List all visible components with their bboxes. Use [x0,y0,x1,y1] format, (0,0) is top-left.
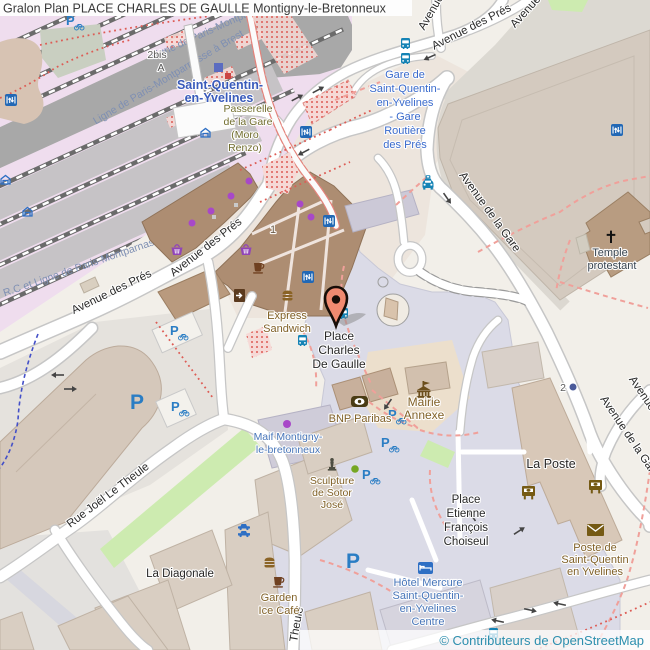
svg-text:P: P [130,391,144,414]
svg-text:en Yvelines: en Yvelines [567,566,624,578]
svg-text:De Gaulle: De Gaulle [312,357,366,371]
svg-text:François: François [444,522,488,534]
svg-text:Routière: Routière [384,125,426,137]
svg-text:P: P [346,550,360,573]
svg-text:Poste de: Poste de [573,542,616,554]
svg-text:Express: Express [267,310,307,322]
svg-text:Gare de: Gare de [385,69,425,81]
svg-text:en-Yvelines: en-Yvelines [377,97,434,109]
svg-text:2bis: 2bis [147,49,166,61]
svg-text:Renzo): Renzo) [228,142,262,154]
svg-text:Annexe: Annexe [404,408,445,422]
svg-text:Saint-Quentin-: Saint-Quentin- [177,78,263,92]
svg-text:Charles: Charles [318,343,359,357]
svg-text:Temple: Temple [592,247,627,259]
svg-text:Gralon Plan PLACE CHARLES DE G: Gralon Plan PLACE CHARLES DE GAULLE Mont… [3,2,387,16]
svg-text:(Moro: (Moro [231,129,259,141]
svg-text:Garden: Garden [261,592,298,604]
svg-text:Mairie: Mairie [408,395,441,409]
svg-text:le-bretonneux: le-bretonneux [256,444,321,456]
svg-text:Centre: Centre [411,616,444,628]
svg-text:Ice Café: Ice Café [259,605,300,617]
svg-text:Saint-Quentin-: Saint-Quentin- [370,83,441,95]
svg-text:Place: Place [452,494,481,506]
svg-text:BNP Paribas: BNP Paribas [329,413,392,425]
svg-text:Saint-Quentin-: Saint-Quentin- [393,590,464,602]
svg-text:A: A [157,62,164,74]
svg-text:Saint-Quentin: Saint-Quentin [561,554,628,566]
svg-text:- Gare: - Gare [389,111,420,123]
svg-text:de la Gare: de la Gare [223,116,272,128]
svg-text:La Diagonale: La Diagonale [146,568,214,580]
svg-text:Sculpture: Sculpture [310,475,355,487]
svg-text:Etienne: Etienne [446,508,485,520]
svg-text:des Prés: des Prés [383,139,427,151]
svg-text:2: 2 [560,382,566,394]
svg-text:Place: Place [324,329,354,343]
svg-text:Choiseul: Choiseul [444,536,489,548]
svg-text:✝: ✝ [604,228,618,247]
svg-text:Hôtel Mercure: Hôtel Mercure [393,577,462,589]
svg-text:protestant: protestant [588,260,637,272]
svg-text:en-Yvelines: en-Yvelines [400,603,457,615]
svg-text:1: 1 [270,224,276,236]
svg-text:José: José [321,499,343,511]
svg-text:© Contributeurs de OpenStreetM: © Contributeurs de OpenStreetMap [439,633,644,648]
svg-text:Passerelle: Passerelle [223,103,272,115]
svg-text:La Poste: La Poste [526,457,575,471]
svg-text:Maif Montigny-: Maif Montigny- [254,431,323,443]
svg-text:Sandwich: Sandwich [263,323,311,335]
svg-text:de Sotor: de Sotor [312,487,352,499]
